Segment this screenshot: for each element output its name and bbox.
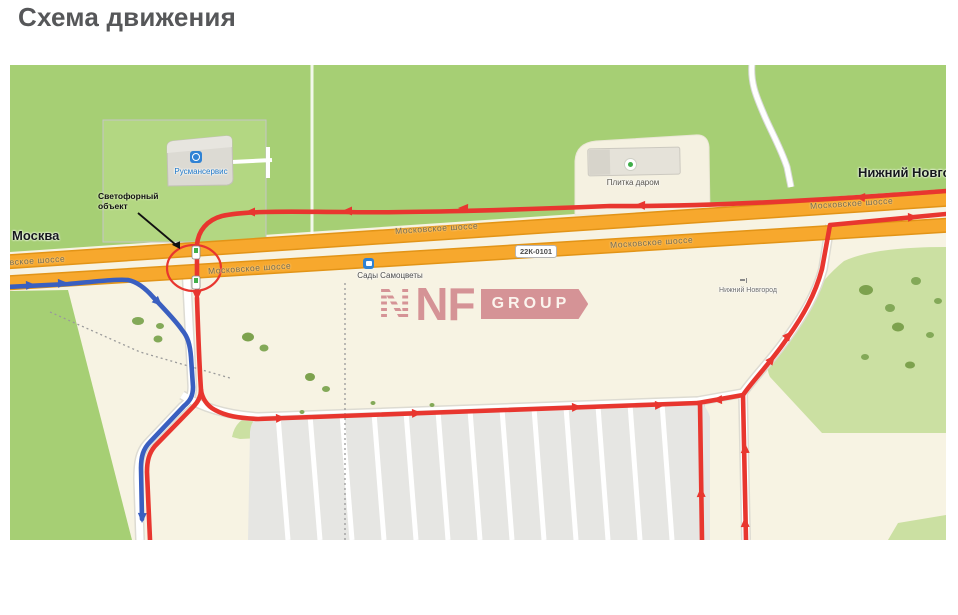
watermark-striped-n: N: [378, 283, 409, 325]
shop-icon: [624, 158, 637, 171]
traffic-scheme-map: Москва Нижний Новгород Московское шоссе …: [10, 65, 946, 540]
nf-group-watermark: N NF GROUP: [378, 283, 588, 325]
road-sign-22k0101: 22К-0101: [515, 245, 557, 258]
wrench-service-icon: [190, 151, 202, 163]
city-marker-icon: [739, 275, 748, 284]
watermark-nf: NF: [415, 283, 474, 325]
watermark-group-flag: GROUP: [481, 289, 589, 319]
page: Схема движения: [0, 0, 958, 615]
page-title: Схема движения: [18, 2, 236, 33]
bus-icon: [363, 258, 374, 269]
